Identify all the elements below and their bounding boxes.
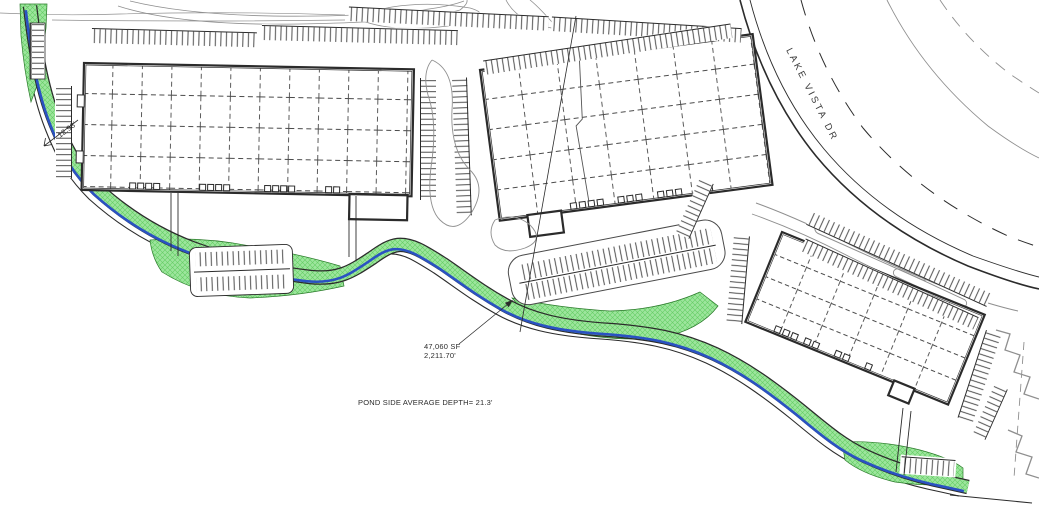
building-1-wing (349, 194, 407, 220)
road-name-label: LAKE VISTA DR (783, 46, 840, 143)
pond-edge-line-end (950, 495, 1032, 503)
pond-depth-note: POND SIDE AVERAGE DEPTH= 21.3' (358, 398, 493, 407)
site-plan-sheet: LAKE VISTA DR (0, 0, 1039, 508)
buffer-parking-island-southeast (899, 455, 956, 478)
building-1-footprint (75, 63, 414, 220)
buffer-length-label: 2,211.70' (424, 351, 456, 360)
buffer-parking-island-left (189, 244, 294, 297)
adjacent-parcel-outline (996, 330, 1039, 478)
buffer-parking-island-top (30, 23, 45, 79)
site-plan-drawing: LAKE VISTA DR (0, 0, 1039, 508)
buffer-area-label: 47,060 SF (424, 342, 461, 351)
building-2-wing (527, 211, 564, 237)
